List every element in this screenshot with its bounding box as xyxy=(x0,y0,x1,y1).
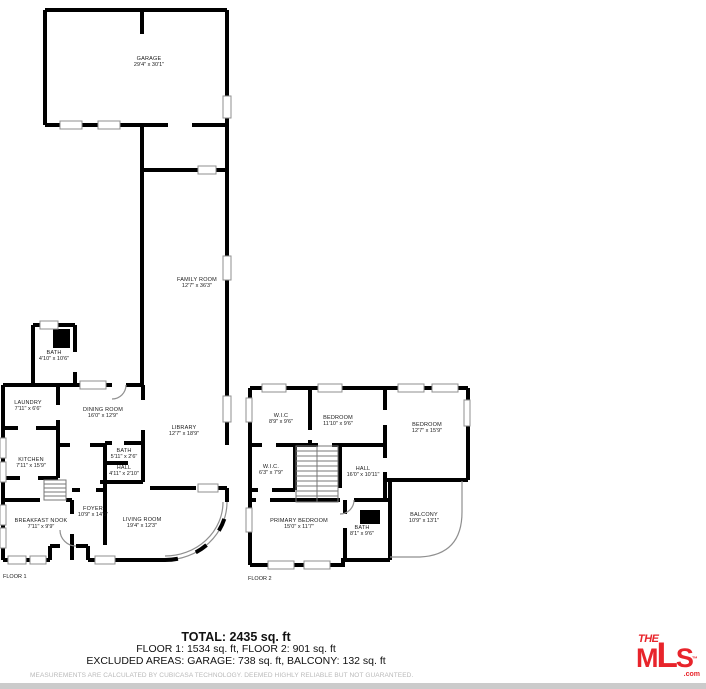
room-label-wic-2: W.I.C. 6'3" x 7'9" xyxy=(259,464,283,476)
room-dims: 16'0" x 12'9" xyxy=(83,413,123,419)
room-dims: 15'0" x 11'7" xyxy=(270,524,328,530)
room-dims: 6'3" x 7'9" xyxy=(259,470,283,476)
bay-wall-segments xyxy=(165,502,227,560)
measurement-disclaimer: MEASUREMENTS ARE CALCULATED BY CUBICASA … xyxy=(30,672,413,679)
room-dims: 7'11" x 6'6" xyxy=(14,406,42,412)
room-label-family-room: FAMILY ROOM 12'7" x 36'3" xyxy=(177,277,217,289)
logo-letter-l: L xyxy=(657,636,676,675)
room-label-living-room: LIVING ROOM 19'4" x 12'3" xyxy=(123,517,162,529)
total-area: TOTAL: 2435 sq. ft xyxy=(16,630,456,644)
staircase-floor1 xyxy=(44,480,66,500)
excluded-areas: EXCLUDED AREAS: GARAGE: 738 sq. ft, BALC… xyxy=(16,656,456,668)
room-dims: 8'1" x 9'6" xyxy=(350,531,374,537)
room-dims: 4'10" x 10'6" xyxy=(39,356,69,362)
room-dims: 19'4" x 12'3" xyxy=(123,523,162,529)
room-label-bedroom-1: BEDROOM 11'10" x 9'6" xyxy=(323,415,353,427)
room-label-breakfast-nook: BREAKFAST NOOK 7'11" x 9'9" xyxy=(15,518,68,530)
room-label-bath-hall: BATH 5'11" x 2'6" xyxy=(111,448,138,460)
room-dims: 7'11" x 15'9" xyxy=(16,463,46,469)
room-label-foyer: FOYER 10'9" x 14'0" xyxy=(78,506,108,518)
room-label-bath-upper: BATH 4'10" x 10'6" xyxy=(39,350,69,362)
room-label-library: LIBRARY 12'7" x 18'9" xyxy=(169,425,199,437)
floor-areas: FLOOR 1: 1534 sq. ft, FLOOR 2: 901 sq. f… xyxy=(16,644,456,656)
floorplan-drawing xyxy=(0,0,706,689)
room-dims: 16'0" x 10'11" xyxy=(347,472,380,478)
floor2-tag: FLOOR 2 xyxy=(248,576,272,582)
room-label-hall-f2: HALL 16'0" x 10'11" xyxy=(347,466,380,478)
room-label-garage: GARAGE 29'4" x 30'1" xyxy=(134,56,164,68)
room-dims: 12'7" x 36'3" xyxy=(177,283,217,289)
floor1-tag: FLOOR 1 xyxy=(3,574,27,580)
room-label-bath-f2: BATH 8'1" x 9'6" xyxy=(350,525,374,537)
room-dims: 8'9" x 9'6" xyxy=(269,419,293,425)
room-label-wic-1: W.I.C 8'9" x 9'6" xyxy=(269,413,293,425)
staircase-floor2 xyxy=(296,446,338,502)
room-label-bedroom-2: BEDROOM 12'7" x 15'9" xyxy=(412,422,442,434)
footer-bar xyxy=(0,683,706,689)
room-dims: 4'11" x 2'10" xyxy=(109,471,139,477)
room-label-hall-f1: HALL 4'11" x 2'10" xyxy=(109,465,139,477)
room-label-laundry: LAUNDRY 7'11" x 6'6" xyxy=(14,400,42,412)
room-label-primary-bedroom: PRIMARY BEDROOM 15'0" x 11'7" xyxy=(270,518,328,530)
room-dims: 10'9" x 14'0" xyxy=(78,512,108,518)
logo-trademark: ™ xyxy=(692,657,698,663)
room-dims: 29'4" x 30'1" xyxy=(134,62,164,68)
the-mls-logo: THE MLS™ .com xyxy=(636,634,702,678)
room-dims: 7'11" x 9'9" xyxy=(15,524,68,530)
room-dims: 11'10" x 9'6" xyxy=(323,421,353,427)
room-dims: 12'7" x 15'9" xyxy=(412,428,442,434)
room-label-balcony: BALCONY 10'9" x 13'1" xyxy=(409,512,439,524)
room-label-dining-room: DINING ROOM 16'0" x 12'9" xyxy=(83,407,123,419)
room-dims: 12'7" x 18'9" xyxy=(169,431,199,437)
room-dims: 10'9" x 13'1" xyxy=(409,518,439,524)
area-summary: TOTAL: 2435 sq. ft FLOOR 1: 1534 sq. ft,… xyxy=(16,630,456,667)
room-dims: 5'11" x 2'6" xyxy=(111,454,138,460)
logo-letter-m: M xyxy=(636,643,657,673)
logo-letter-s: S xyxy=(676,643,692,673)
room-label-kitchen: KITCHEN 7'11" x 15'9" xyxy=(16,457,46,469)
floorplan-page: GARAGE 29'4" x 30'1" FAMILY ROOM 12'7" x… xyxy=(0,0,706,689)
